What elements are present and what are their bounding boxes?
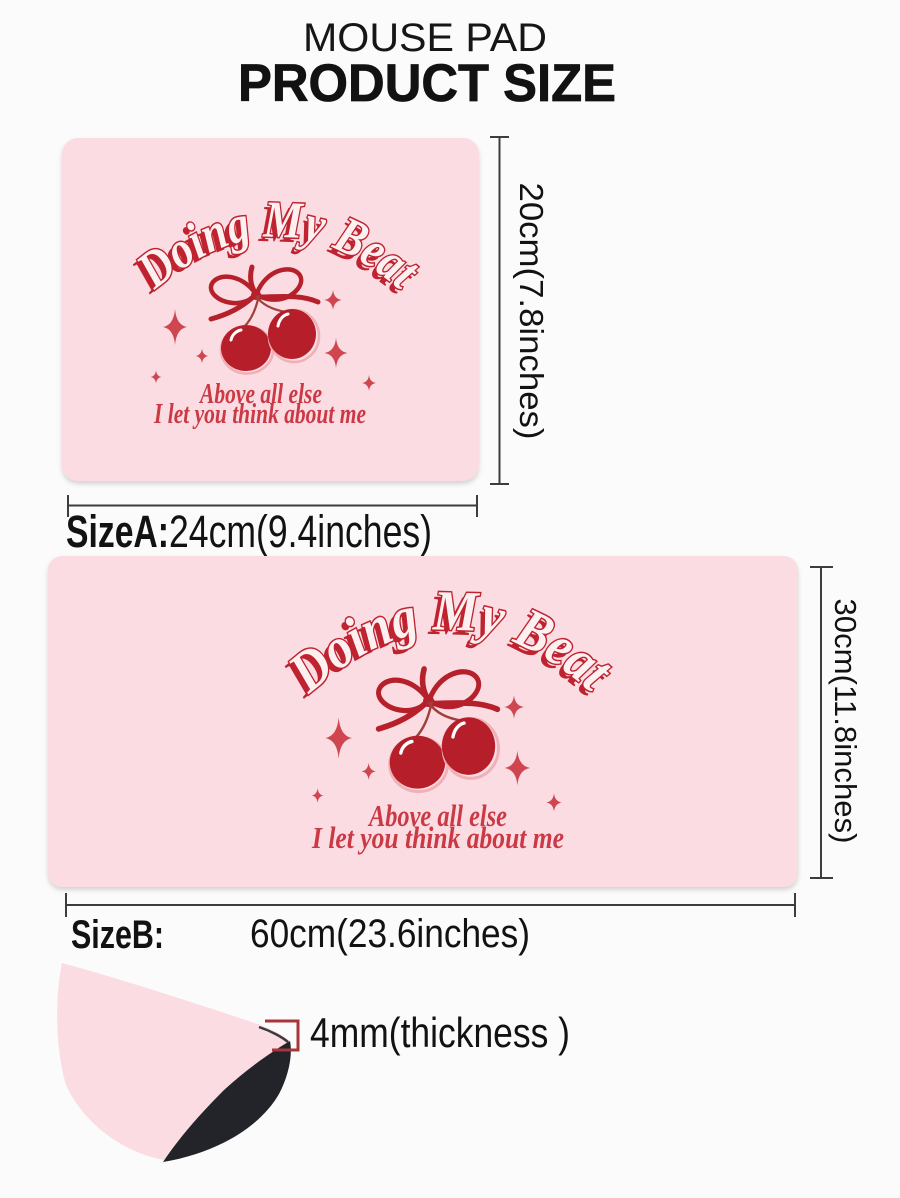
svg-text:SizeA:24cm(9.4inches): SizeA:24cm(9.4inches) (66, 506, 432, 557)
svg-text:4mm(thickness ): 4mm(thickness ) (310, 1009, 570, 1056)
svg-text:PRODUCT SIZE: PRODUCT SIZE (238, 54, 616, 113)
svg-text:I let you think about me: I let you think about me (311, 820, 564, 855)
svg-text:SizeB:: SizeB: (71, 913, 164, 957)
svg-text:20cm(7.8inches): 20cm(7.8inches) (513, 183, 550, 440)
svg-text:30cm(11.8inches): 30cm(11.8inches) (828, 599, 863, 844)
svg-text:I let you think about me: I let you think about me (153, 399, 366, 430)
svg-text:60cm(23.6inches): 60cm(23.6inches) (250, 912, 530, 956)
